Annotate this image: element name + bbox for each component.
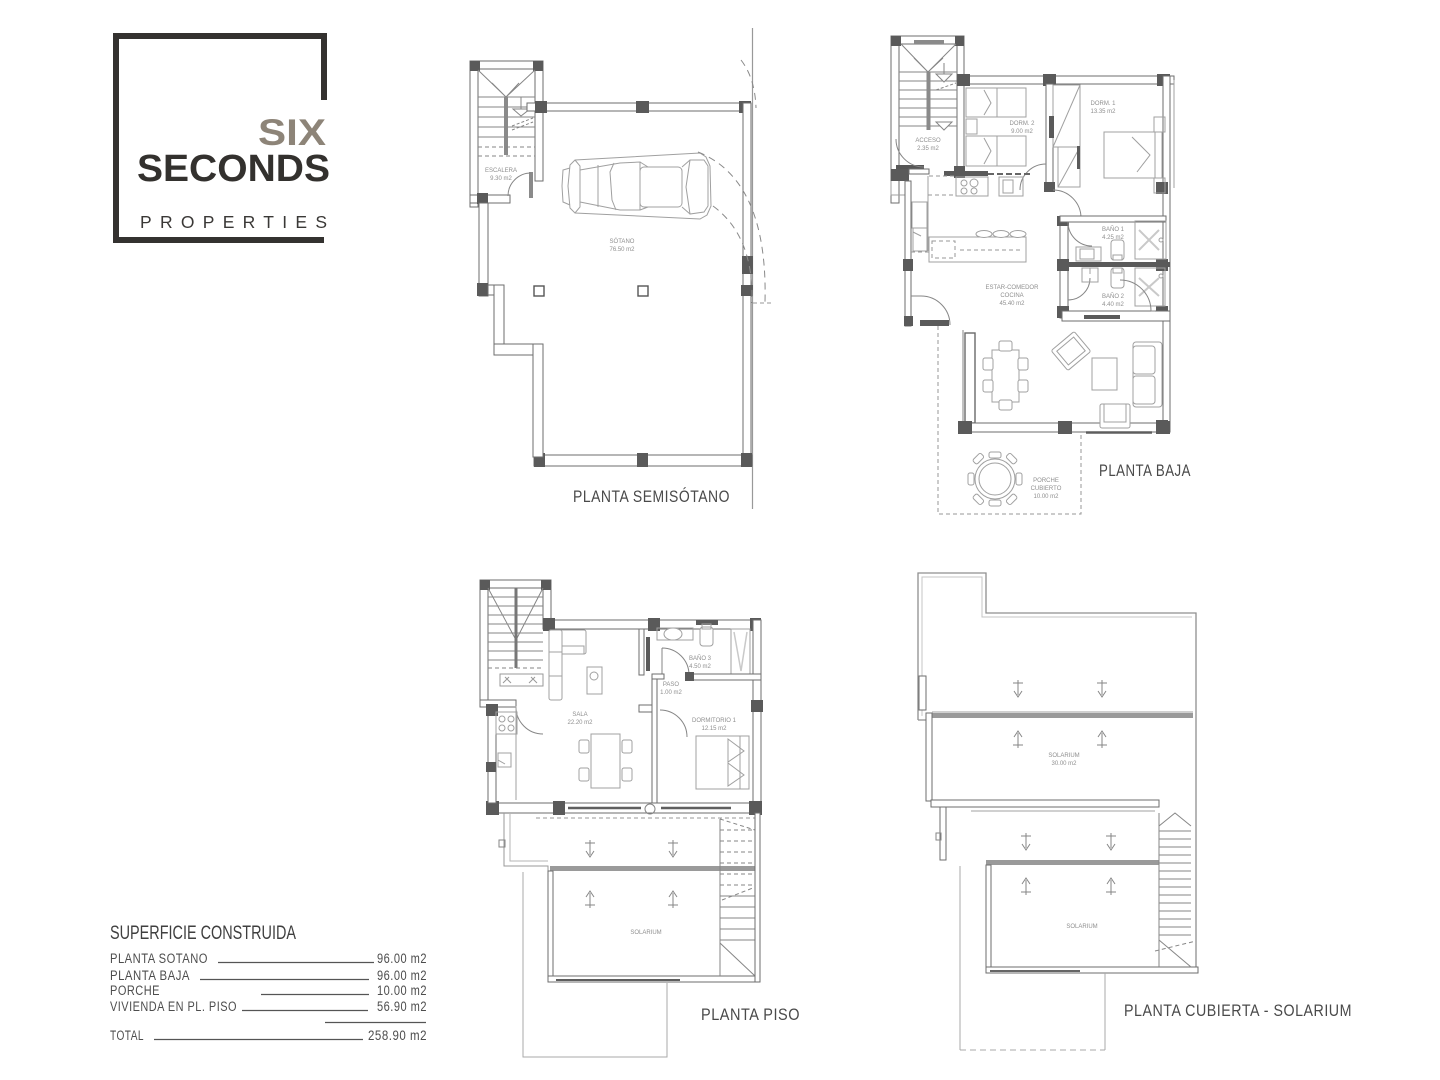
svg-text:PORCHE: PORCHE xyxy=(1033,478,1059,484)
svg-text:PLANTA BAJA: PLANTA BAJA xyxy=(1099,462,1191,480)
svg-text:SIX: SIX xyxy=(258,112,326,153)
svg-text:1.00 m2: 1.00 m2 xyxy=(660,690,682,696)
svg-text:96.00 m2: 96.00 m2 xyxy=(377,951,427,966)
svg-text:PLANTA PISO: PLANTA PISO xyxy=(701,1006,800,1024)
svg-text:PORCHE: PORCHE xyxy=(110,983,160,998)
svg-text:BAÑO 3: BAÑO 3 xyxy=(689,655,712,662)
svg-text:CUBIERTO: CUBIERTO xyxy=(1031,486,1062,492)
svg-text:4.25 m2: 4.25 m2 xyxy=(1102,235,1124,241)
svg-text:96.00 m2: 96.00 m2 xyxy=(377,968,427,983)
svg-text:10.00 m2: 10.00 m2 xyxy=(1033,494,1059,500)
svg-text:9.00 m2: 9.00 m2 xyxy=(1011,129,1033,135)
svg-text:COCINA: COCINA xyxy=(1000,293,1023,299)
svg-text:4.40 m2: 4.40 m2 xyxy=(1102,302,1124,308)
svg-text:BAÑO 2: BAÑO 2 xyxy=(1102,293,1125,300)
svg-text:PROPERTIES: PROPERTIES xyxy=(140,212,327,232)
svg-text:SÓTANO: SÓTANO xyxy=(610,238,635,245)
svg-text:DORM. 2: DORM. 2 xyxy=(1009,121,1035,127)
svg-text:ESTAR-COMEDOR: ESTAR-COMEDOR xyxy=(986,285,1040,291)
svg-text:DORMITORIO 1: DORMITORIO 1 xyxy=(692,718,737,724)
svg-text:13.35 m2: 13.35 m2 xyxy=(1090,109,1116,115)
svg-text:ACCESO: ACCESO xyxy=(915,138,941,144)
svg-text:SOLARIUM: SOLARIUM xyxy=(1048,753,1079,759)
svg-text:30.00 m2: 30.00 m2 xyxy=(1051,761,1077,767)
svg-text:258.90 m2: 258.90 m2 xyxy=(368,1028,427,1043)
svg-text:4.50 m2: 4.50 m2 xyxy=(689,664,711,670)
svg-text:PASO: PASO xyxy=(663,682,680,688)
svg-text:56.90 m2: 56.90 m2 xyxy=(377,999,427,1014)
svg-text:PLANTA SEMISÓTANO: PLANTA SEMISÓTANO xyxy=(573,487,730,506)
svg-text:SUPERFICIE CONSTRUIDA: SUPERFICIE CONSTRUIDA xyxy=(110,923,296,944)
svg-text:VIVIENDA EN PL. PISO: VIVIENDA EN PL. PISO xyxy=(110,999,237,1014)
svg-text:22.20 m2: 22.20 m2 xyxy=(567,720,593,726)
svg-text:45.40 m2: 45.40 m2 xyxy=(999,301,1025,307)
svg-text:PLANTA BAJA: PLANTA BAJA xyxy=(110,968,190,983)
svg-text:DORM. 1: DORM. 1 xyxy=(1090,101,1116,107)
svg-text:12.15 m2: 12.15 m2 xyxy=(701,726,727,732)
svg-text:10.00 m2: 10.00 m2 xyxy=(377,983,427,998)
svg-text:SOLARIUM: SOLARIUM xyxy=(1066,924,1097,930)
svg-text:2.35 m2: 2.35 m2 xyxy=(917,146,939,152)
svg-text:76.50 m2: 76.50 m2 xyxy=(609,247,635,253)
svg-text:ESCALERA: ESCALERA xyxy=(485,168,517,174)
svg-text:9.30 m2: 9.30 m2 xyxy=(490,176,512,182)
svg-text:PLANTA SOTANO: PLANTA SOTANO xyxy=(110,951,208,966)
svg-text:SECONDS: SECONDS xyxy=(137,148,330,190)
svg-text:SALA: SALA xyxy=(572,712,587,718)
svg-text:TOTAL: TOTAL xyxy=(110,1028,144,1043)
svg-text:SOLARIUM: SOLARIUM xyxy=(630,930,661,936)
svg-text:BAÑO 1: BAÑO 1 xyxy=(1102,226,1125,233)
svg-text:PLANTA CUBIERTA - SOLARIUM: PLANTA CUBIERTA - SOLARIUM xyxy=(1124,1002,1352,1020)
